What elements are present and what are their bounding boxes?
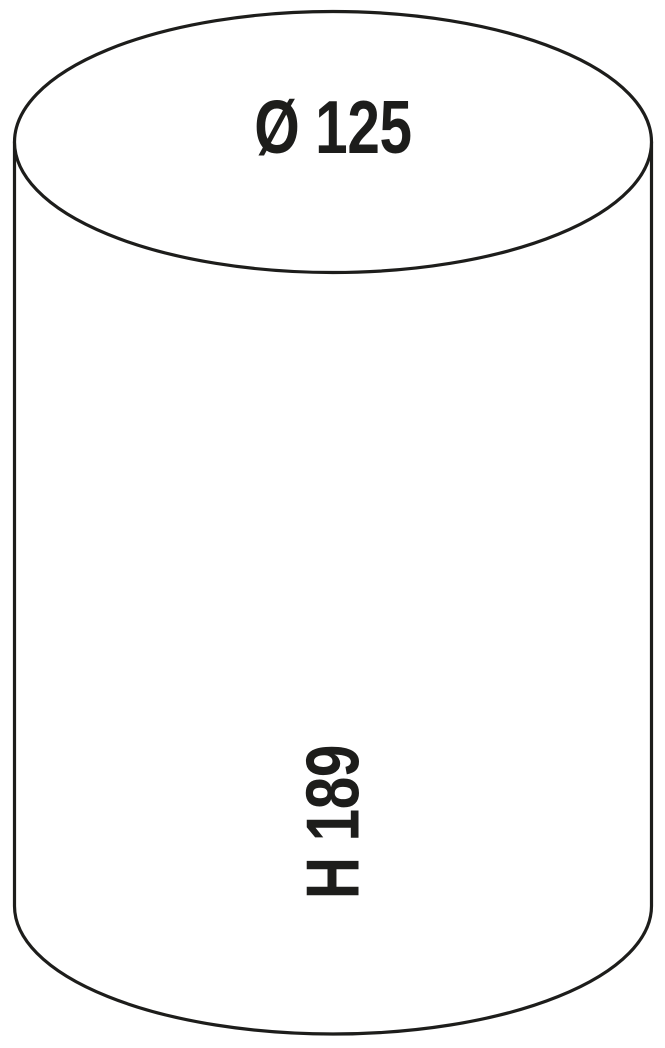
diameter-dimension-text: Ø 125 <box>254 90 411 165</box>
dimension-diagram: Ø 125 H 189 <box>0 0 665 1048</box>
diameter-dimension: Ø 125 <box>0 90 665 165</box>
height-dimension-text: H 189 <box>296 745 371 899</box>
cylinder-body-outline <box>15 142 652 1034</box>
